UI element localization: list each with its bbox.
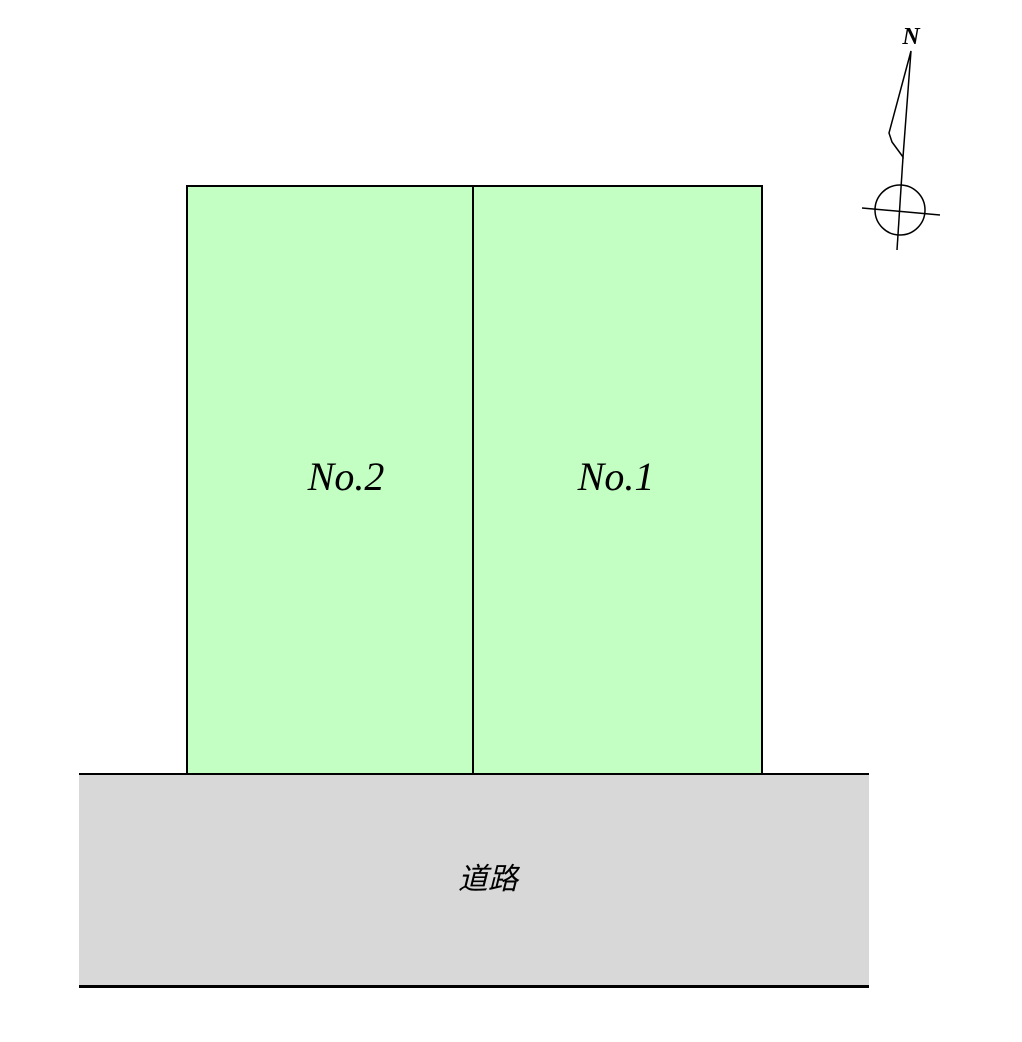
- compass-vertical-line: [897, 157, 903, 250]
- site-plan-canvas: No.2 No.1 道路 N: [0, 0, 1022, 1042]
- parcel-no1-label: No.1: [578, 457, 655, 497]
- compass-north-label: N: [901, 24, 921, 50]
- road-label: 道路: [458, 865, 518, 895]
- compass-needle-pennant: [889, 51, 911, 157]
- compass-horizontal-line: [862, 208, 940, 215]
- parcel-no2-label: No.2: [308, 457, 385, 497]
- north-compass-icon: N: [840, 20, 960, 260]
